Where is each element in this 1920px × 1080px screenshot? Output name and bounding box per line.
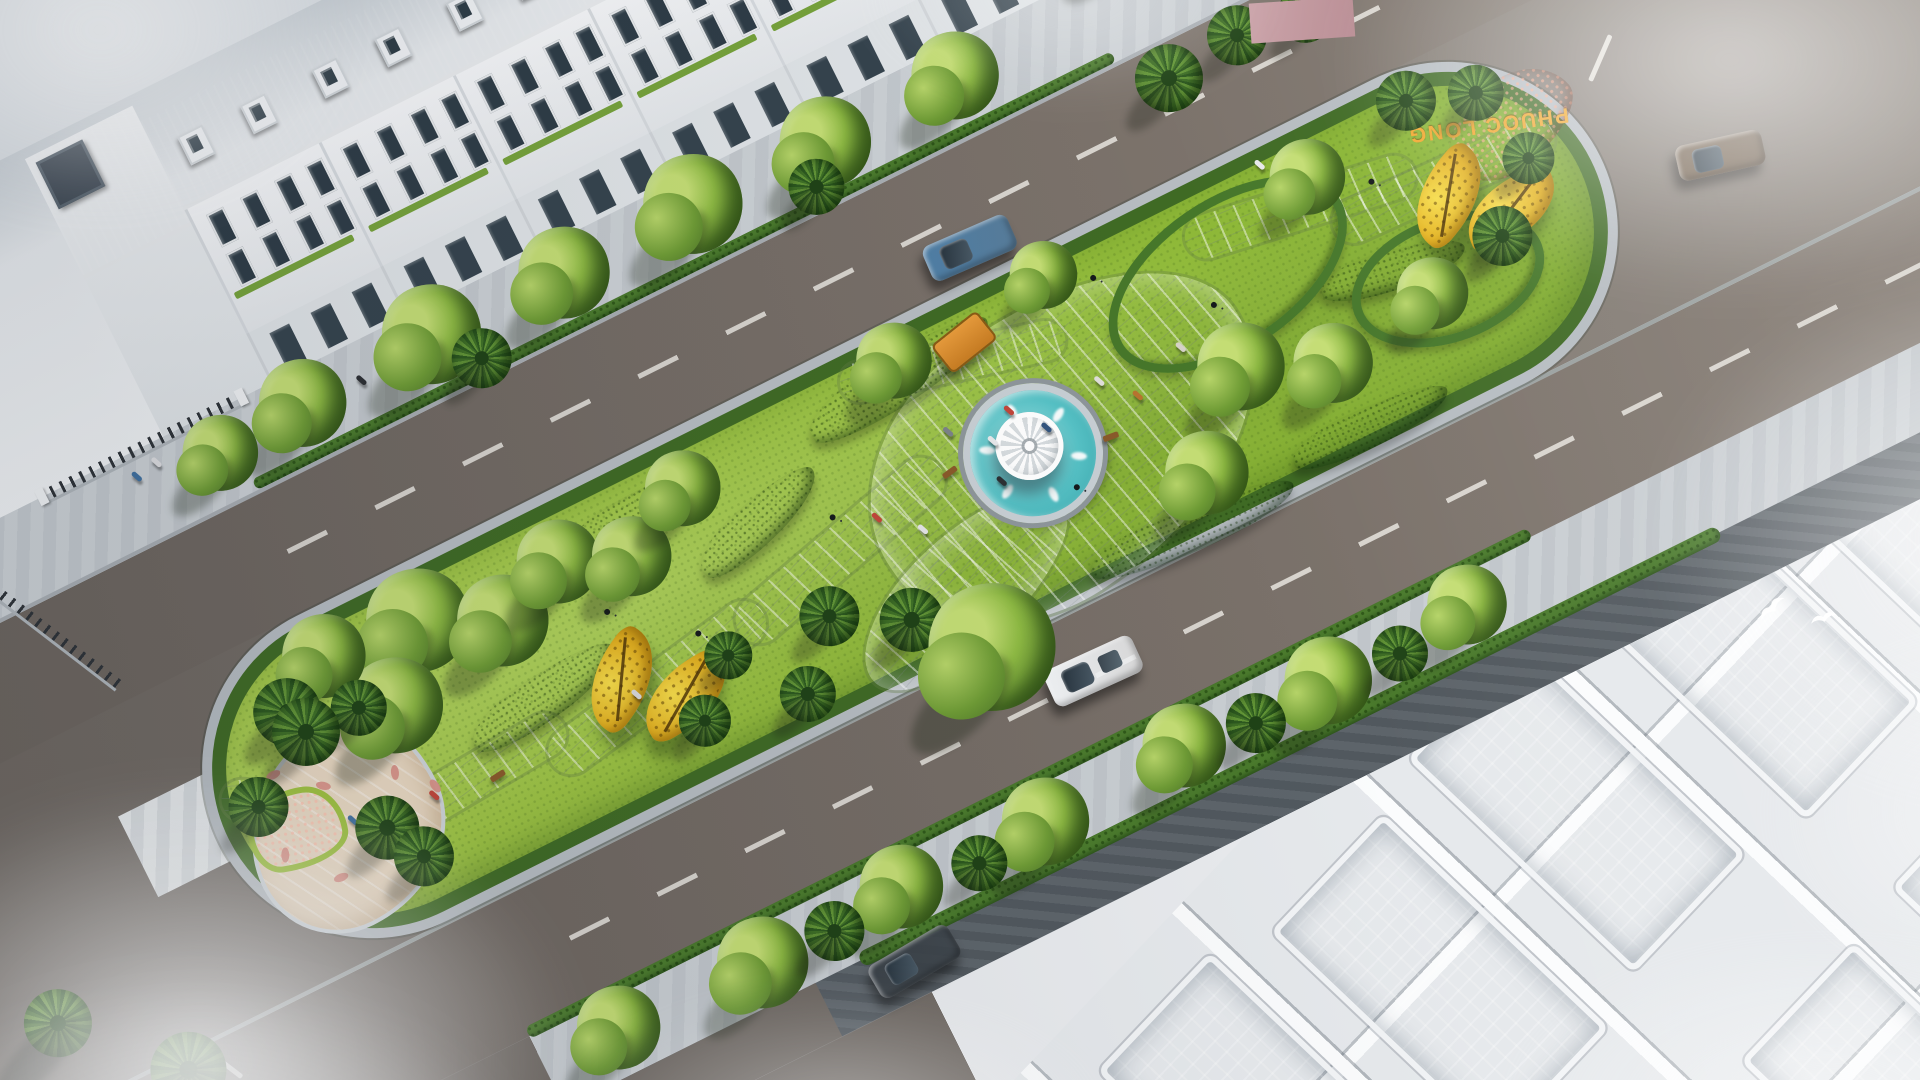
- dormer-window: [445, 0, 484, 32]
- pink-roof-building: [1249, 0, 1356, 44]
- window: [374, 123, 407, 164]
- window: [360, 179, 393, 220]
- boulevard-rotated-plane: PHUOC LONG: [0, 0, 1920, 1080]
- window: [508, 56, 541, 97]
- window: [562, 78, 595, 119]
- dormer-window: [240, 93, 279, 134]
- dormer-window: [177, 124, 216, 165]
- window: [394, 162, 427, 203]
- storefront-door: [310, 303, 348, 349]
- dormer-window: [311, 58, 350, 99]
- window: [628, 45, 661, 86]
- window: [643, 0, 676, 30]
- car-windshield: [882, 951, 920, 987]
- dormer-window: [374, 26, 413, 67]
- storefront-door: [486, 216, 524, 262]
- storefront-door: [806, 56, 844, 102]
- plaza-petal-motif: [281, 848, 289, 863]
- rooftop-courtyard: [1749, 951, 1920, 1080]
- window: [260, 229, 293, 270]
- window: [474, 73, 507, 114]
- window: [494, 112, 527, 153]
- storefront-door: [982, 0, 1020, 14]
- window: [294, 212, 327, 253]
- window: [206, 207, 239, 248]
- window: [226, 246, 259, 287]
- car-sunroof: [1096, 649, 1123, 675]
- window: [662, 28, 695, 69]
- car-windshield: [937, 237, 974, 271]
- window: [528, 95, 561, 136]
- window: [609, 6, 642, 47]
- storefront-door: [445, 236, 483, 282]
- window: [677, 0, 710, 13]
- car-windshield: [1059, 660, 1096, 694]
- aerial-render-scene: PHUOC LONG: [0, 0, 1920, 1080]
- window: [408, 106, 441, 147]
- storefront-door: [579, 169, 617, 215]
- storefront-door: [847, 35, 885, 81]
- window: [340, 140, 373, 181]
- car-windshield: [1691, 144, 1725, 174]
- window: [542, 39, 575, 80]
- window: [274, 173, 307, 214]
- storefront-door: [713, 102, 751, 148]
- window: [696, 11, 729, 52]
- storefront-door: [941, 0, 979, 35]
- window: [428, 145, 461, 186]
- window: [240, 190, 273, 231]
